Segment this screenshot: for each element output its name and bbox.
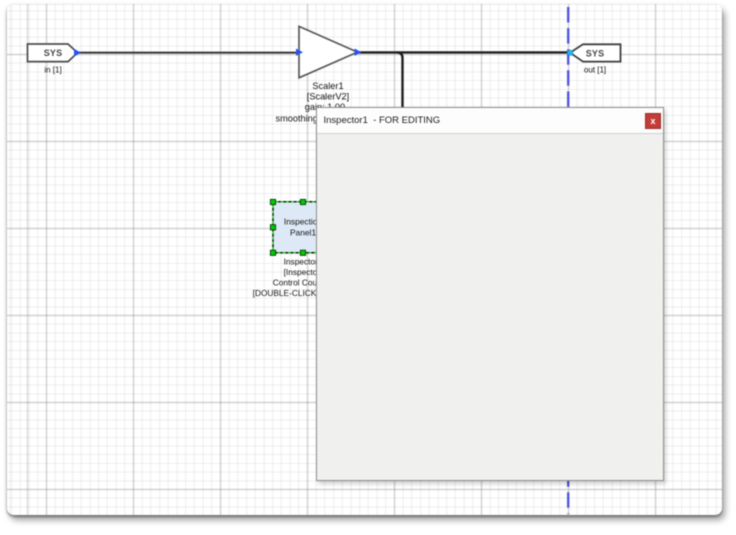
svg-text:Panel1: Panel1 xyxy=(290,228,316,238)
svg-text:out [1]: out [1] xyxy=(584,66,606,75)
svg-text:SYS: SYS xyxy=(586,49,605,59)
svg-text:SYS: SYS xyxy=(44,48,63,58)
svg-text:in [1]: in [1] xyxy=(44,66,61,75)
svg-text:Scaler1: Scaler1 xyxy=(312,81,343,91)
svg-text:[ScalerV2]: [ScalerV2] xyxy=(307,91,349,101)
